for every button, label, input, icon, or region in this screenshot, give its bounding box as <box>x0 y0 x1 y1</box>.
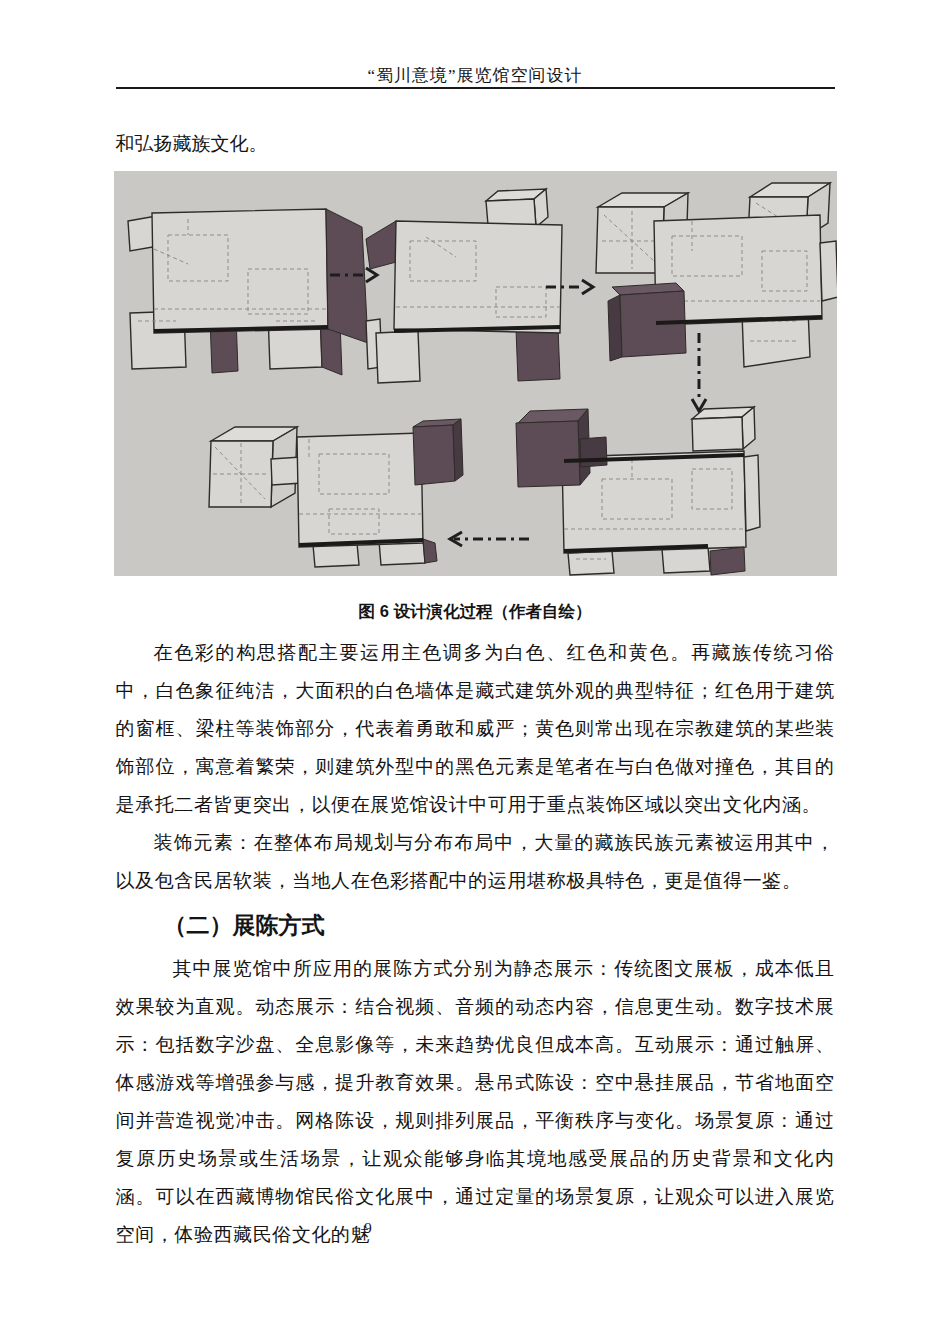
lead-paragraph: 和弘扬藏族文化。 <box>116 131 835 157</box>
page-header: “蜀川意境”展览馆空间设计 <box>116 0 835 89</box>
header-title: “蜀川意境”展览馆空间设计 <box>116 64 835 87</box>
paragraph-decor-elements: 装饰元素：在整体布局规划与分布布局中，大量的藏族民族元素被运用其中，以及包含民居… <box>116 824 835 900</box>
section-heading: （二）展陈方式 <box>116 908 835 942</box>
paragraph-color-scheme: 在色彩的构思搭配主要运用主色调多为白色、红色和黄色。再藏族传统习俗中，白色象征纯… <box>116 634 835 824</box>
figure-design-evolution <box>114 171 837 576</box>
document-page: “蜀川意境”展览馆空间设计 和弘扬藏族文化。 <box>0 0 950 1344</box>
paragraph-display-methods: 其中展览馆中所应用的展陈方式分别为静态展示：传统图文展板，成本低且效果较为直观。… <box>116 950 835 1254</box>
design-evolution-diagram <box>114 171 837 576</box>
body-column: 在色彩的构思搭配主要运用主色调多为白色、红色和黄色。再藏族传统习俗中，白色象征纯… <box>116 634 835 1254</box>
figure-caption: 图 6 设计演化过程（作者自绘） <box>0 598 950 624</box>
page-number: 9 <box>356 1220 380 1237</box>
